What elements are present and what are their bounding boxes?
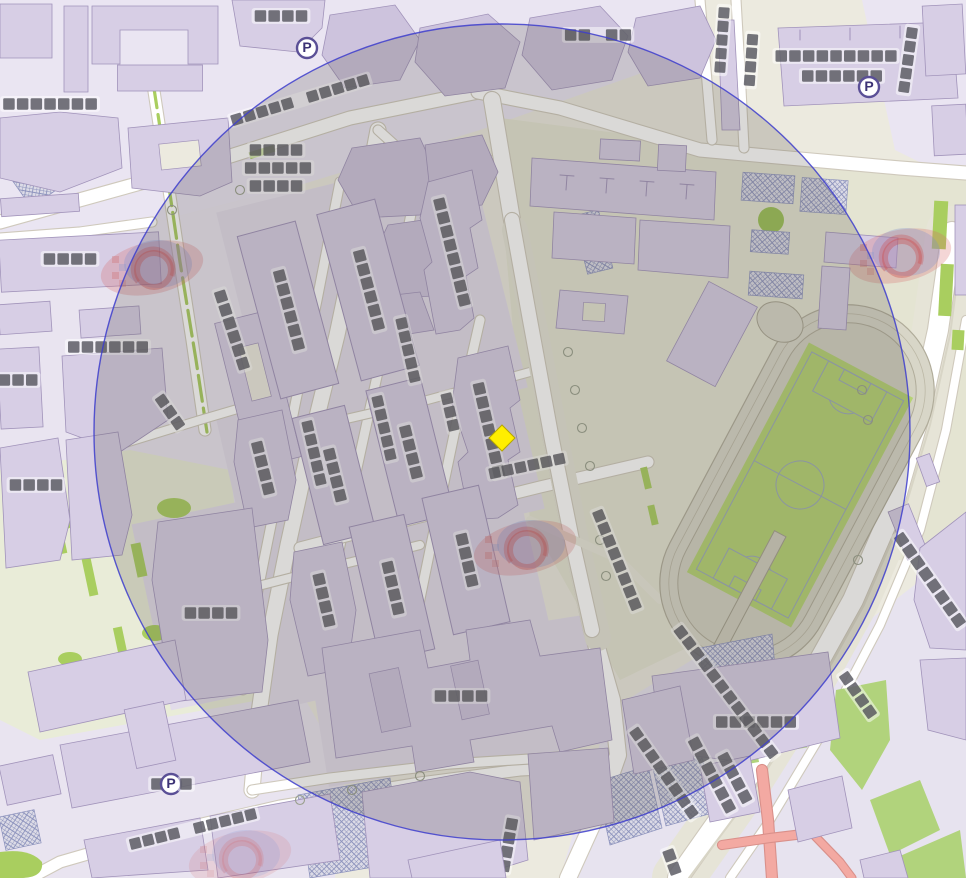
svg-text:P: P xyxy=(302,39,311,55)
svg-text:P: P xyxy=(166,775,175,791)
svg-text:P: P xyxy=(864,78,873,94)
